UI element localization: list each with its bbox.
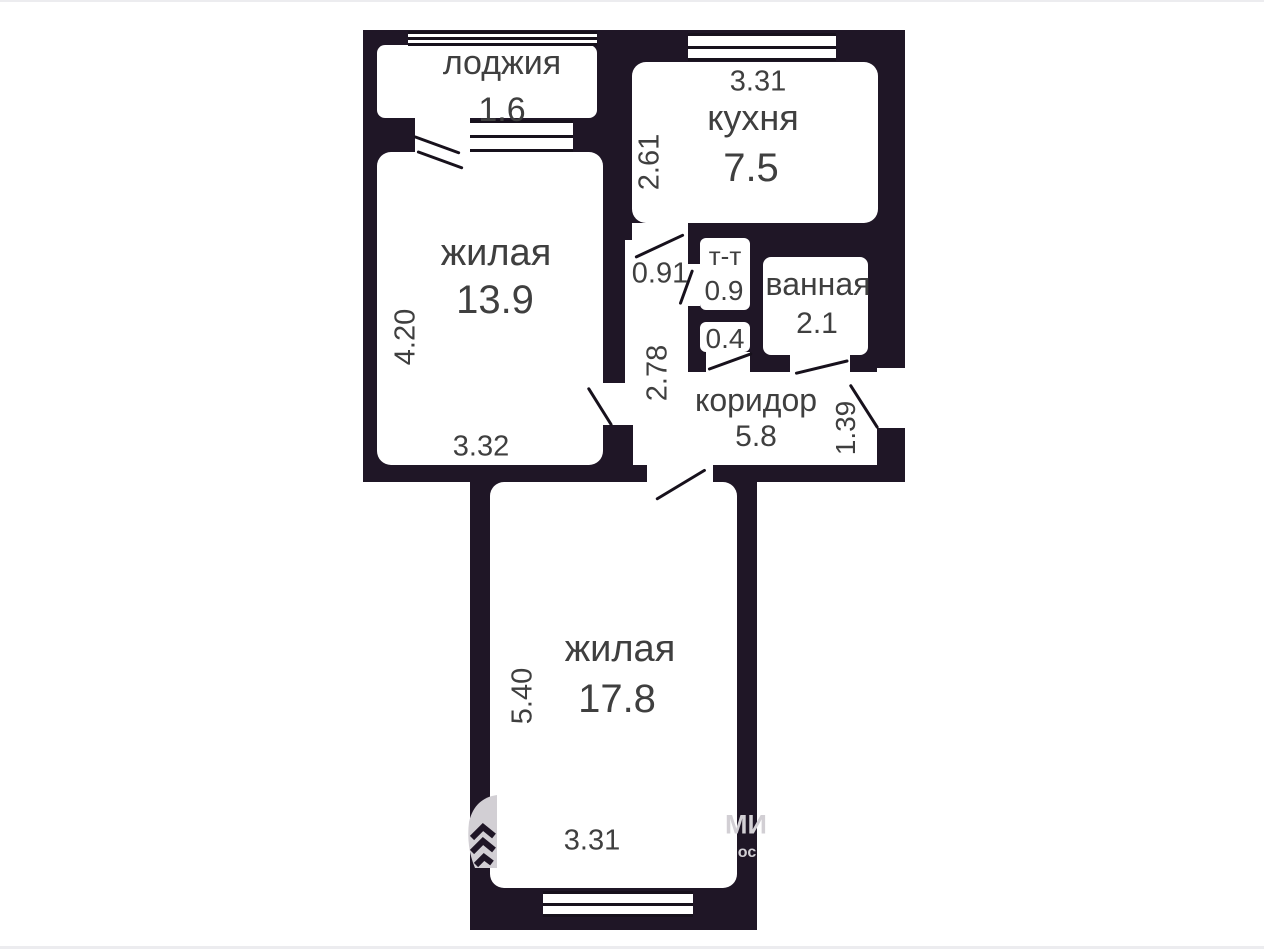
storage-area: 0.4	[706, 325, 745, 353]
living2-window	[543, 891, 693, 917]
hallway-depth-dim: 2.78	[644, 345, 673, 401]
kitchen-window	[688, 33, 836, 61]
loggia-label: лоджия	[443, 46, 561, 80]
hallway-width-dim: 0.91	[632, 260, 688, 289]
living1-label: жилая	[441, 234, 552, 272]
living2-width-dim: 3.31	[564, 827, 620, 856]
watermark-text-fragment-1: МИ	[725, 812, 767, 839]
bathroom-area: 2.1	[796, 309, 838, 339]
wall-stub-living1-door	[603, 425, 633, 477]
kitchen-depth-dim: 2.61	[636, 134, 665, 190]
top-edge-line	[0, 0, 1264, 2]
living1-depth-dim: 4.20	[392, 309, 421, 365]
entry-width-dim: 1.39	[832, 401, 860, 456]
floor-plan-canvas: лоджия 1.6 3.31 кухня 7.5 2.61 жилая 13.…	[0, 0, 1264, 949]
living1-width-dim: 3.32	[453, 433, 509, 462]
living2-label: жилая	[565, 630, 676, 668]
corridor-label: коридор	[695, 384, 817, 416]
living1-area: 13.9	[456, 280, 534, 320]
loggia-area: 1.6	[478, 93, 525, 127]
living2-area: 17.8	[578, 679, 656, 719]
watermark-text-fragment-2: ос	[738, 845, 756, 861]
kitchen-label: кухня	[707, 100, 799, 136]
balcony-door-gap	[415, 118, 470, 155]
entrance-door-gap	[877, 368, 905, 428]
living2-depth-dim: 5.40	[509, 668, 538, 724]
bathroom-label: ванная	[766, 268, 871, 300]
toilet-label: т-т	[709, 243, 741, 269]
toilet-area: 0.9	[705, 277, 744, 305]
kitchen-area: 7.5	[723, 148, 779, 188]
watermark-house-icon	[465, 792, 497, 870]
kitchen-width-dim: 3.31	[730, 68, 786, 97]
corridor-area: 5.8	[735, 422, 777, 452]
